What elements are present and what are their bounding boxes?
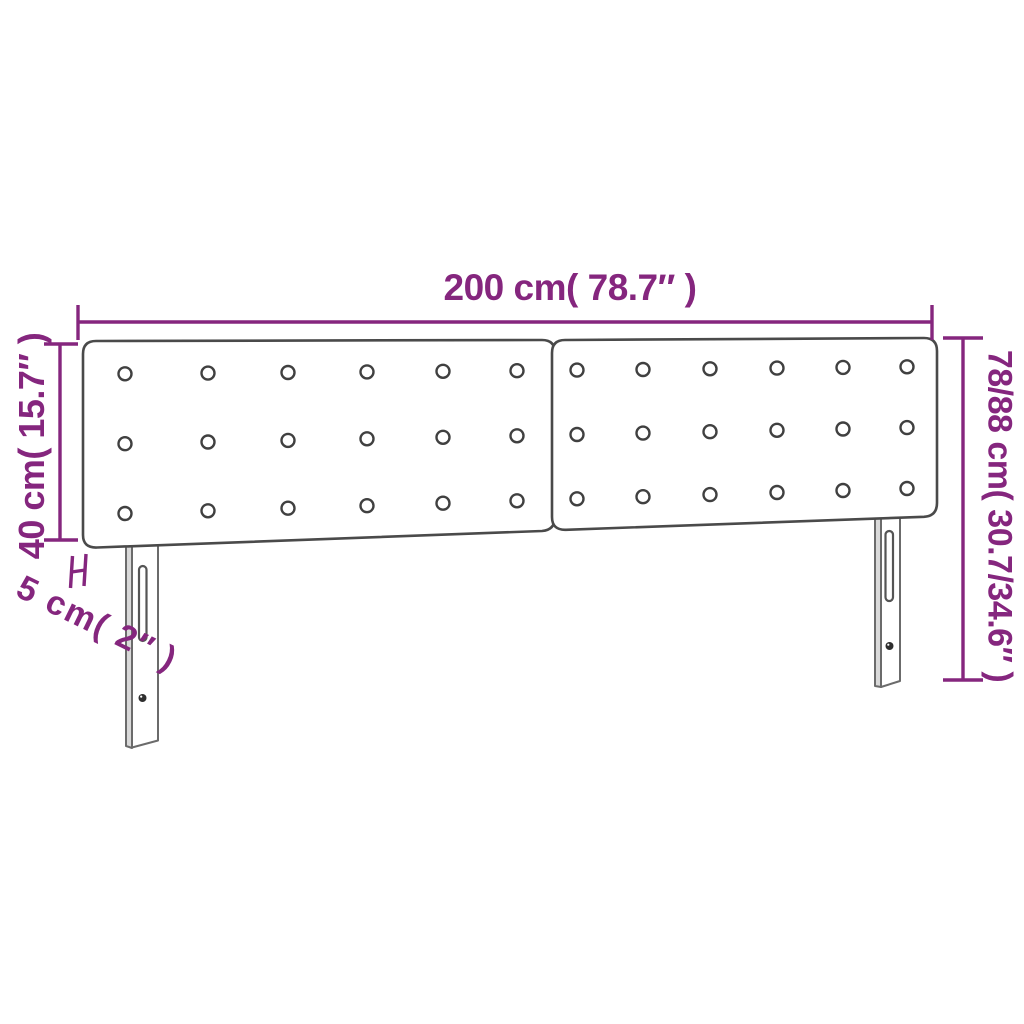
tufting-button	[901, 482, 914, 495]
tufting-button	[511, 494, 524, 507]
tufting-button	[771, 424, 784, 437]
tufting-button	[361, 432, 374, 445]
tufting-button	[282, 366, 295, 379]
tufting-button	[511, 364, 524, 377]
tufting-button	[119, 507, 132, 520]
headboard-left-panel	[83, 340, 555, 548]
left-leg-screw-highlight	[140, 696, 142, 698]
tufting-button	[704, 488, 717, 501]
tufting-button	[361, 365, 374, 378]
total-height-dimension-label: 78/88 cm( 30.7/34.6″ )	[980, 350, 1019, 682]
tufting-button	[119, 437, 132, 450]
thickness-dimension-line	[72, 570, 86, 572]
tufting-button	[511, 429, 524, 442]
width-dimension-label: 200 cm( 78.7″ )	[444, 267, 697, 309]
tufting-button	[704, 362, 717, 375]
right-leg-screw-highlight	[887, 644, 889, 646]
tufting-button	[771, 486, 784, 499]
tufting-button	[202, 436, 215, 449]
tufting-button	[437, 365, 450, 378]
diagram-stage: 200 cm( 78.7″ ) 40 cm( 15.7″ ) 78/88 cm(…	[0, 0, 1024, 1024]
tufting-button	[837, 423, 850, 436]
tufting-button	[704, 425, 717, 438]
total-height-dimension	[943, 338, 983, 680]
tufting-button	[119, 367, 132, 380]
thickness-dimension	[71, 554, 87, 588]
tufting-button	[837, 484, 850, 497]
tufting-button	[637, 427, 650, 440]
tufting-button	[837, 361, 850, 374]
right-leg-screw-icon	[886, 642, 894, 650]
tufting-button	[361, 499, 374, 512]
tufting-button	[571, 364, 584, 377]
tufting-button	[637, 363, 650, 376]
left-leg-screw-icon	[139, 694, 147, 702]
panel-height-dimension-label: 40 cm( 15.7″ )	[11, 333, 53, 559]
right-leg	[875, 512, 900, 687]
width-dimension	[78, 305, 932, 340]
tufting-button	[901, 421, 914, 434]
tufting-button	[771, 362, 784, 375]
tufting-button	[437, 431, 450, 444]
headboard	[83, 338, 937, 548]
diagram-canvas	[0, 0, 1024, 1024]
tufting-button	[202, 504, 215, 517]
tufting-button	[282, 502, 295, 515]
tufting-button	[437, 497, 450, 510]
tufting-button	[282, 434, 295, 447]
tufting-button	[901, 360, 914, 373]
headboard-right-panel	[552, 338, 937, 530]
tufting-button	[571, 492, 584, 505]
right-leg-slot	[886, 531, 894, 601]
tufting-button	[637, 490, 650, 503]
tufting-button	[571, 428, 584, 441]
tufting-button	[202, 367, 215, 380]
